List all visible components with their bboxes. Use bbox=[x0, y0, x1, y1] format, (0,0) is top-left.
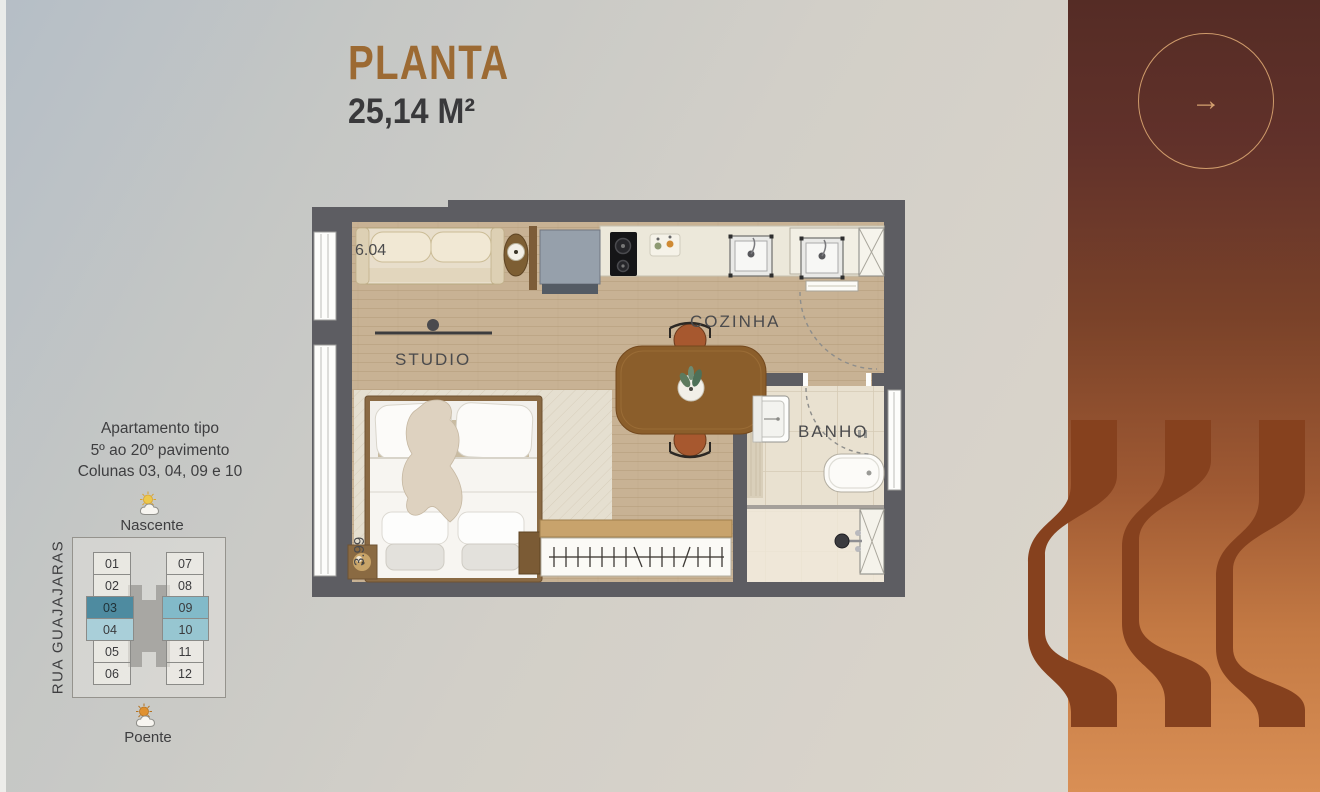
arrow-right-icon: → bbox=[1191, 84, 1221, 118]
unit-cell-06: 06 bbox=[93, 662, 131, 685]
cooktop bbox=[610, 232, 637, 276]
bathroom-divider bbox=[747, 505, 884, 509]
shaft bbox=[860, 509, 884, 574]
orientation-south: Poente bbox=[93, 702, 203, 746]
apartment-info-line1: Apartamento tipo bbox=[55, 418, 265, 440]
apartment-info-line3: Colunas 03, 04, 09 e 10 bbox=[55, 461, 265, 483]
unit-cell-08: 08 bbox=[166, 574, 204, 597]
room-label-studio: STUDIO bbox=[395, 350, 471, 369]
apartment-info: Apartamento tipo 5º ao 20º pavimento Col… bbox=[55, 418, 265, 483]
area-value: 25,14 M² bbox=[348, 94, 525, 129]
fridge bbox=[540, 230, 600, 294]
unit-cell-09: 09 bbox=[162, 596, 209, 619]
orientation-north-label: Nascente bbox=[120, 517, 183, 534]
next-arrow-button[interactable]: → bbox=[1138, 33, 1274, 169]
wardrobe bbox=[519, 520, 732, 576]
unit-cell-05: 05 bbox=[93, 640, 131, 663]
side-panel: → bbox=[1068, 0, 1320, 792]
side-table bbox=[504, 234, 528, 276]
dining-table bbox=[616, 346, 766, 434]
toilet bbox=[753, 396, 789, 442]
floor-plan: 6.04 3.99 STUDIO COZINHA BANHO bbox=[298, 192, 918, 612]
header: PLANTA 25,14 M² bbox=[348, 38, 540, 129]
room-label-bath: BANHO bbox=[798, 422, 868, 441]
sink bbox=[729, 235, 774, 278]
page: PLANTA 25,14 M² Apartamento tipo 5º ao 2… bbox=[0, 0, 1320, 792]
counter-items bbox=[650, 234, 680, 256]
unit-cell-02: 02 bbox=[93, 574, 131, 597]
room-label-kitchen: COZINHA bbox=[690, 312, 781, 331]
sink bbox=[800, 237, 845, 280]
unit-cell-12: 12 bbox=[166, 662, 204, 685]
unit-cell-04: 04 bbox=[86, 618, 134, 641]
bed bbox=[365, 396, 542, 582]
sun-cloud-icon bbox=[131, 702, 165, 728]
street-label: RUA GUAJAJARAS bbox=[44, 537, 72, 698]
unit-cell-07: 07 bbox=[166, 552, 204, 575]
unit-cell-11: 11 bbox=[166, 640, 204, 663]
dimension-depth: 3.99 bbox=[351, 537, 368, 566]
unit-cell-10: 10 bbox=[162, 618, 209, 641]
sun-cloud-icon bbox=[135, 490, 169, 516]
building-diagram: 01 02 03 04 05 06 07 08 09 10 11 12 bbox=[72, 537, 226, 698]
shaft bbox=[859, 228, 884, 276]
dimension-width: 6.04 bbox=[355, 242, 386, 259]
left-edge-highlight bbox=[0, 0, 6, 792]
floor-runner bbox=[529, 226, 537, 290]
bathtub bbox=[824, 454, 884, 492]
orientation-south-label: Poente bbox=[124, 729, 172, 746]
unit-cell-01: 01 bbox=[93, 552, 131, 575]
apartment-info-line2: 5º ao 20º pavimento bbox=[55, 440, 265, 462]
page-title: PLANTA bbox=[348, 38, 509, 86]
orientation-north: Nascente bbox=[97, 490, 207, 534]
unit-cell-03: 03 bbox=[86, 596, 134, 619]
